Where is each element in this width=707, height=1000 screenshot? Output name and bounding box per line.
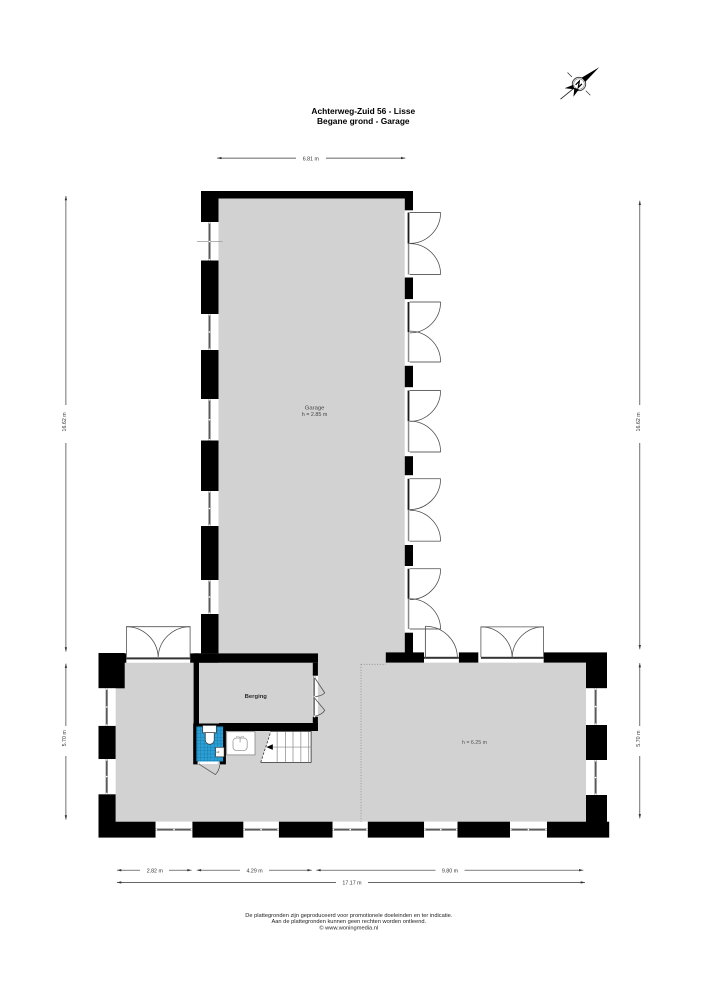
svg-text:4.29 m: 4.29 m (246, 868, 263, 874)
svg-text:5.70 m: 5.70 m (636, 730, 642, 747)
svg-text:5.70 m: 5.70 m (62, 730, 68, 747)
svg-text:© www.woningmedia.nl: © www.woningmedia.nl (319, 924, 378, 931)
svg-text:Achterweg-Zuid 56 - Lisse: Achterweg-Zuid 56 - Lisse (311, 106, 415, 116)
svg-text:Begane grond - Garage: Begane grond - Garage (317, 116, 410, 126)
svg-text:16.62 m: 16.62 m (62, 412, 68, 432)
svg-text:16.62 m: 16.62 m (636, 412, 642, 432)
svg-text:Garage: Garage (305, 406, 325, 412)
svg-text:9.80 m: 9.80 m (442, 868, 459, 874)
svg-text:Berging: Berging (245, 694, 268, 700)
svg-text:h = 2.85 m: h = 2.85 m (302, 412, 328, 418)
svg-text:17.17 m: 17.17 m (342, 881, 362, 887)
svg-text:De plattegronden zijn geproduc: De plattegronden zijn geproduceerd voor … (245, 913, 453, 919)
svg-text:6.81 m: 6.81 m (303, 156, 320, 162)
svg-text:2.82 m: 2.82 m (147, 868, 164, 874)
svg-text:h = 6.25 m: h = 6.25 m (462, 740, 488, 746)
svg-text:Aan de plattegronden kunnen ge: Aan de plattegronden kunnen geen rechten… (271, 919, 426, 925)
